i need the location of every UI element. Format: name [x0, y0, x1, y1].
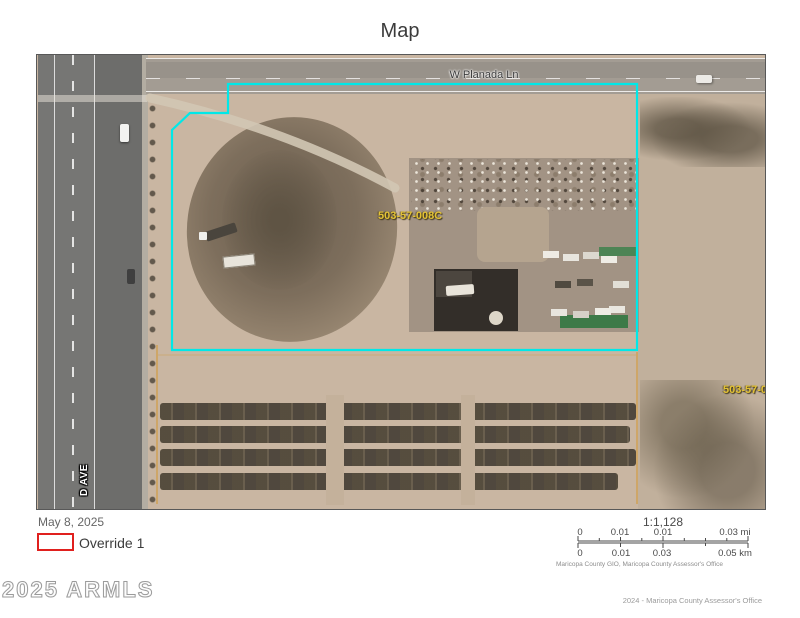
white-car: [120, 124, 129, 142]
street-label: W Planada Ln: [404, 69, 564, 81]
white-car: [696, 75, 712, 83]
override-swatch: [37, 533, 74, 551]
avenue-label: D AVE: [79, 444, 93, 496]
copyright-attribution: 2024 - Maricopa County Assessor's Office: [623, 596, 762, 605]
page-title: Map: [0, 20, 800, 43]
parcel-id-label: 503-57-008C: [378, 210, 442, 222]
adjacent-parcel-id-label: 503-57-01: [723, 384, 766, 396]
dark-car: [127, 269, 135, 284]
map-canvas: W Planada Ln 503-57-008C 503-57-01 D AVE: [36, 54, 766, 510]
driveway-track: [150, 98, 395, 188]
truck-cab: [199, 232, 207, 240]
scalebar-km-labels: 0 0.01 0.03 0.05 km: [577, 548, 753, 558]
km-tick-label: 0: [577, 548, 582, 559]
km-tick-label: 0.05 km: [718, 548, 752, 559]
km-tick-label: 0.03: [653, 548, 672, 559]
scalebar-ticks: [577, 536, 749, 548]
armls-watermark: 2025 ARMLS: [2, 577, 154, 603]
map-date: May 8, 2025: [38, 515, 104, 529]
override-label: Override 1: [79, 535, 144, 551]
data-sources: Maricopa County GIO, Maricopa County Ass…: [556, 561, 723, 568]
parcel-overlay: [37, 55, 765, 509]
km-tick-label: 0.01: [612, 548, 631, 559]
